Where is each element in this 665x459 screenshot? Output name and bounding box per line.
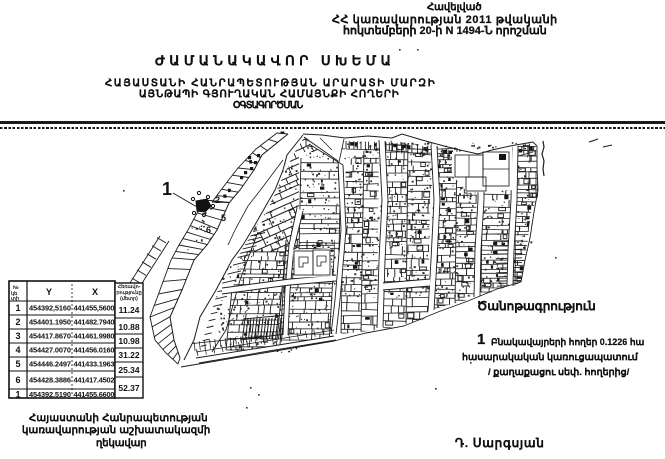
svg-text:5: 5 <box>15 359 20 369</box>
svg-text:1: 1 <box>162 179 172 199</box>
svg-text:4: 4 <box>15 345 20 355</box>
svg-text:441482.7940: 441482.7940 <box>74 318 115 327</box>
svg-text:454392.5190: 454392.5190 <box>29 390 71 399</box>
svg-text:2: 2 <box>15 317 20 327</box>
svg-text:Y: Y <box>46 287 52 297</box>
svg-text:X: X <box>92 287 98 297</box>
svg-text:454392,5160: 454392,5160 <box>29 304 71 313</box>
svg-text:3: 3 <box>15 331 20 341</box>
svg-text:11.24: 11.24 <box>119 305 140 315</box>
svg-text:տի: տի <box>11 296 19 302</box>
svg-text:454417.8670: 454417.8670 <box>29 332 71 341</box>
svg-text:31.22: 31.22 <box>118 350 140 360</box>
svg-text:454446.2497: 454446.2497 <box>29 360 71 369</box>
svg-text:441461.9980: 441461.9980 <box>74 332 115 341</box>
svg-text:6: 6 <box>206 225 211 235</box>
svg-text:441455,5600: 441455,5600 <box>74 304 115 313</box>
svg-text:6: 6 <box>15 375 20 385</box>
svg-text:454427.0070: 454427.0070 <box>29 346 71 355</box>
svg-text:441455.6600: 441455.6600 <box>74 390 115 399</box>
svg-text:454428.3886: 454428.3886 <box>29 376 71 385</box>
svg-text:1: 1 <box>15 303 20 313</box>
svg-text:1: 1 <box>15 390 20 400</box>
svg-text:441433.1963: 441433.1963 <box>74 360 115 369</box>
svg-text:25.34: 25.34 <box>118 365 140 375</box>
svg-text:2: 2 <box>215 195 220 205</box>
svg-text:(մետր): (մետր) <box>120 296 138 302</box>
svg-text:454401.1950: 454401.1950 <box>29 318 71 327</box>
svg-text:5: 5 <box>221 213 226 223</box>
svg-text:10.98: 10.98 <box>118 336 140 346</box>
svg-text:441417.4502: 441417.4502 <box>74 376 115 385</box>
svg-text:10.88: 10.88 <box>118 322 140 332</box>
svg-text:52.37: 52.37 <box>118 383 140 393</box>
svg-text:441456.0160: 441456.0160 <box>74 346 115 355</box>
